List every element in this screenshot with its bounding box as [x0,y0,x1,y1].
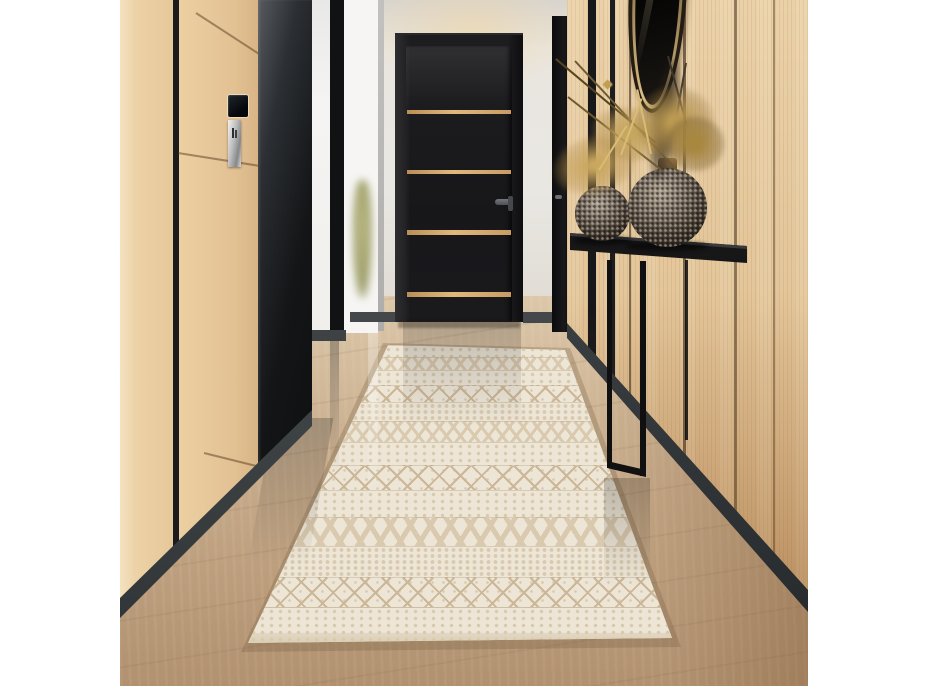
table-leg [640,261,646,476]
wall-corner-shade [378,0,384,331]
partition-sill [312,330,346,341]
wall-strip [312,0,330,340]
plate-glyph [232,128,234,138]
gold-inlay-stripe [407,170,511,174]
rug-band-dotgrid [240,546,681,577]
baseboard [350,312,395,322]
side-door-handle [555,195,562,199]
wall-plate [228,120,241,167]
door-threshold-shadow [398,320,520,328]
page: { "scene": { "type": "interior-photograp… [0,0,928,686]
gold-foliage [665,116,725,172]
rug-band-lattice [240,577,681,607]
wall-keypad [228,95,248,117]
hallway-door [406,46,512,322]
sphere-vase-large [628,168,707,247]
gold-inlay-stripe [407,292,511,297]
plant-behind-glass [353,180,372,298]
table-rear-leg [685,260,688,440]
rug-band-edge [240,607,681,643]
gold-inlay-stripe [407,230,511,235]
hallway-photo [120,0,808,686]
door-handle-mount [508,196,513,211]
table-leg [607,260,612,468]
plate-glyph [235,130,237,138]
gold-inlay-stripe [407,110,511,114]
partition-frame [330,0,344,337]
rug-band-chevron [240,517,681,546]
